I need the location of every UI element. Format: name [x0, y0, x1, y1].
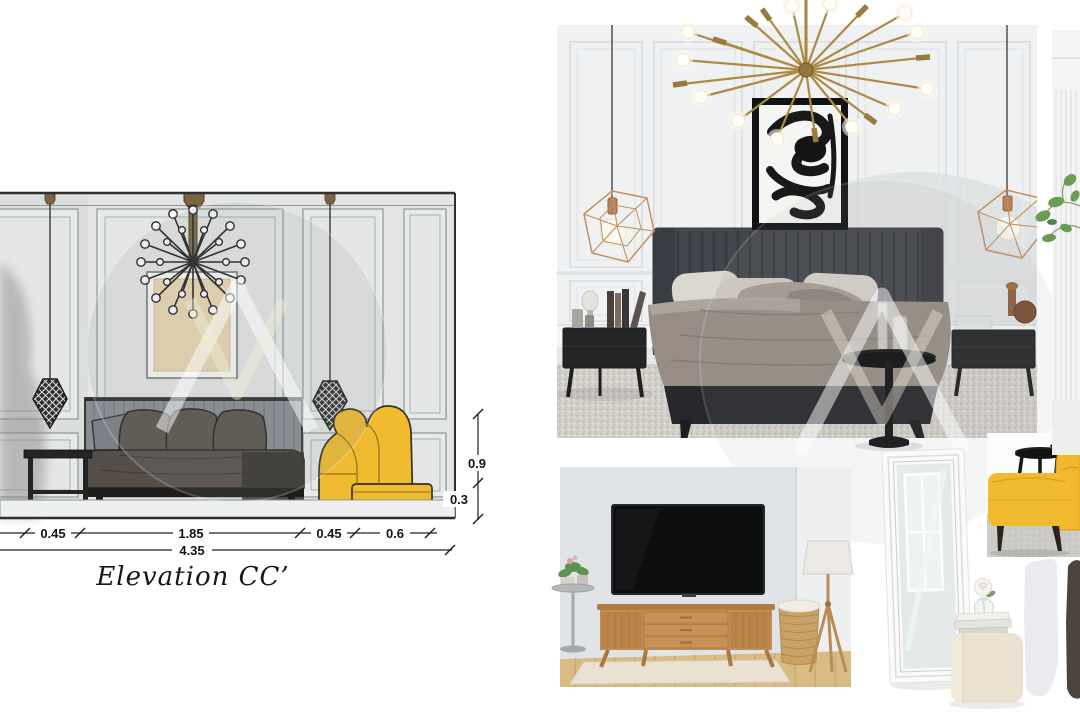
dim-segment-2: 1.85	[178, 526, 203, 541]
dim-segment-4: 0.6	[386, 526, 404, 541]
elevation-watermark	[87, 202, 387, 502]
tv-room-photo	[552, 467, 853, 687]
dim-segment-1: 0.45	[40, 526, 65, 541]
stacked-books	[955, 612, 1012, 635]
moodboard-canvas: 0.45 1.85 0.45 0.6 4.35 0.9 0.3 Elevatio…	[0, 0, 1080, 720]
dim-segment-3: 0.45	[316, 526, 341, 541]
white-rose	[975, 579, 992, 596]
dim-vertical-upper: 0.9	[468, 456, 486, 471]
paint-swatch-dark	[1066, 560, 1080, 699]
paint-swatch-light	[1024, 559, 1058, 697]
cream-cube-pouf	[949, 633, 1025, 709]
dim-total-width: 4.35	[179, 543, 204, 558]
elevation-drawing: 0.45 1.85 0.45 0.6 4.35 0.9 0.3 Elevatio…	[0, 193, 494, 592]
dim-vertical-lower: 0.3	[450, 492, 468, 507]
wall-tv	[612, 505, 764, 597]
elevation-title: Elevation CC’	[95, 562, 289, 592]
interior-design-moodboard: 0.45 1.85 0.45 0.6 4.35 0.9 0.3 Elevatio…	[0, 0, 1080, 720]
